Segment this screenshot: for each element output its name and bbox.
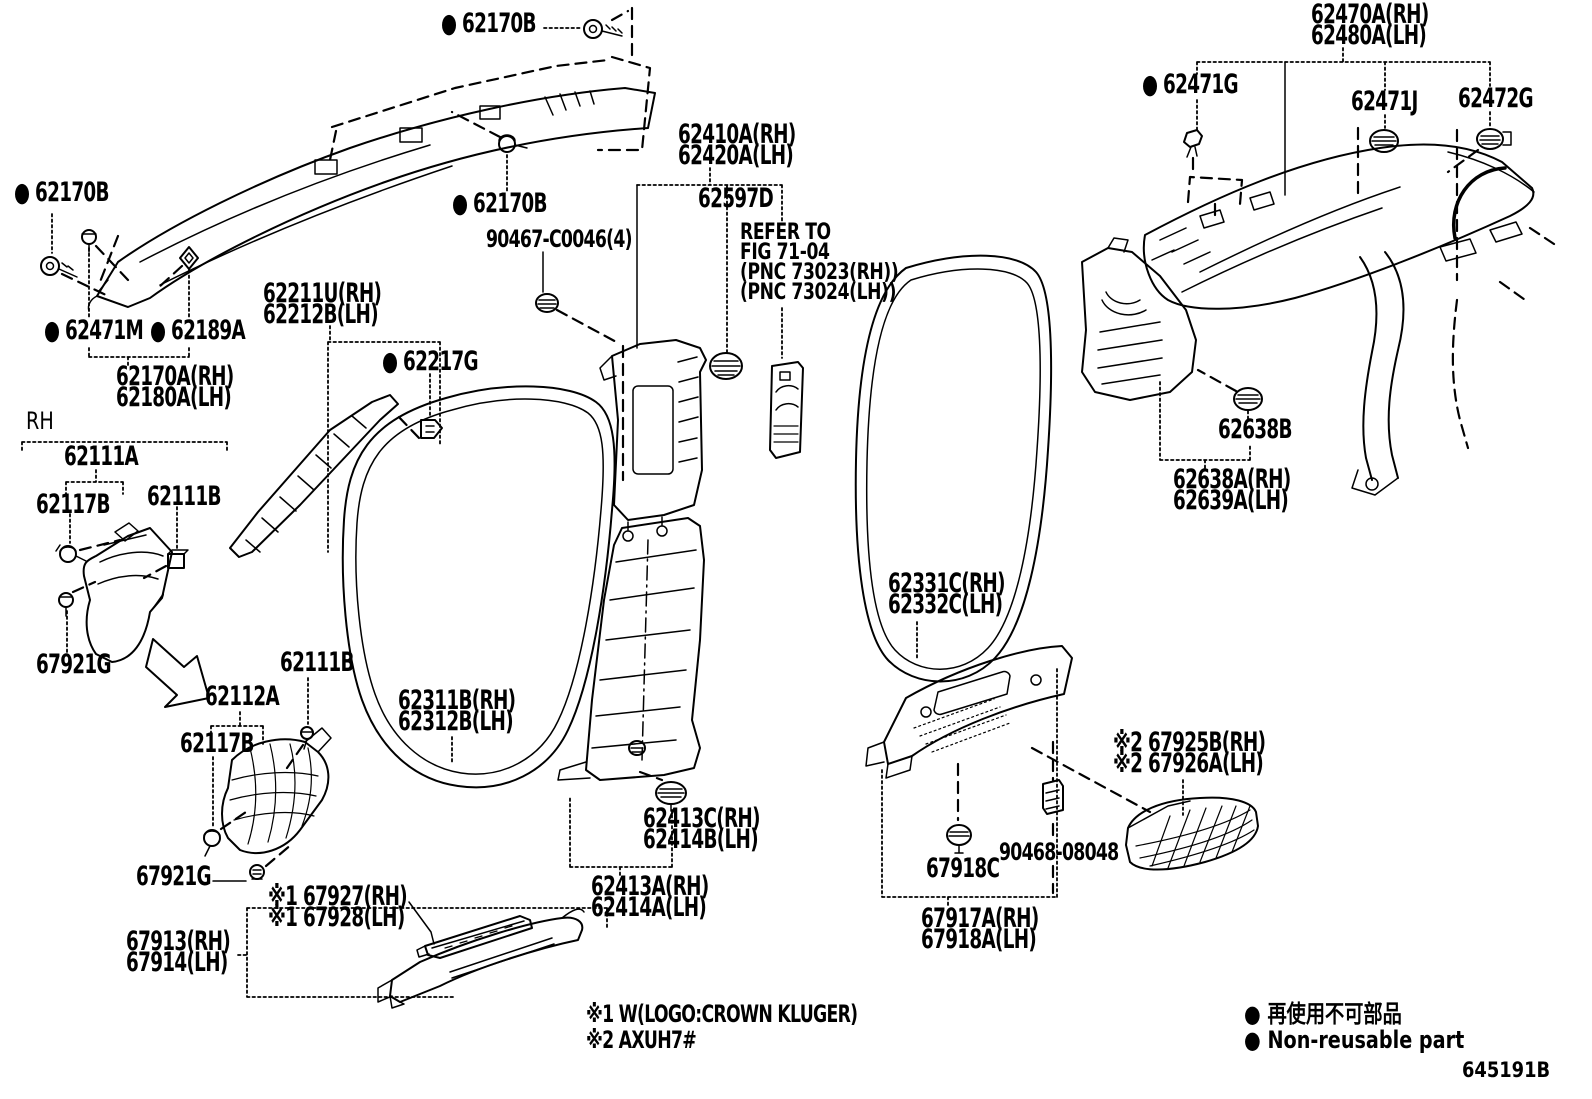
clip-rect-90468-icon: [1043, 780, 1063, 814]
b-pillar-upper-garnish-drawing: [600, 340, 706, 541]
part-label-62112a: 62112A: [205, 686, 279, 707]
part-label-62170a: 62170A(RH) 62180A(LH): [116, 366, 234, 408]
part-label-62117b-1: 62117B: [36, 494, 110, 515]
roof-side-rail-garnish-drawing: [62, 57, 655, 311]
section-marker-rh: RH: [26, 410, 54, 432]
clip-screw-62170b-top-icon: [584, 20, 622, 38]
part-label-62471g: ● 62471G: [1142, 74, 1238, 95]
front-scuff-plate-drawing: [378, 909, 584, 1008]
clip-grommet-62472g-icon: [1477, 129, 1511, 149]
part-label-62111a: 62111A: [64, 446, 138, 467]
cowl-side-trim-drawing: [84, 523, 172, 662]
part-label-62331c: 62331C(RH) 62332C(LH): [888, 573, 1005, 615]
part-label-62638a: 62638A(RH) 62639A(LH): [1173, 469, 1291, 511]
clip-pin-62471g-icon: [1184, 130, 1202, 157]
parts-diagram-page: ● 62170B ● 62170B ● 62170B ● 62471M ● 62…: [0, 0, 1592, 1099]
part-label-62111b-1: 62111B: [147, 486, 221, 507]
part-label-62638b: 62638B: [1218, 419, 1292, 440]
part-label-67925b: ※2 67925B(RH) ※2 67926A(LH): [1113, 732, 1265, 774]
part-label-67921g-1: 67921G: [36, 654, 111, 675]
clip-grommet-62638b-icon: [1234, 388, 1262, 410]
part-label-67913: 67913(RH) 67914(LH): [126, 931, 230, 973]
c-pillar-garnish-drawing: [1082, 238, 1196, 400]
b-pillar-lower-garnish-drawing: [558, 518, 704, 780]
part-label-62471m: ● 62471M: [44, 320, 143, 341]
step-pad-drawing: [1126, 798, 1258, 870]
clip-bracket-62217g-icon: [421, 420, 442, 438]
part-label-62211u: 62211U(RH) 62212B(LH): [263, 283, 381, 325]
part-label-62170b-left: ● 62170B: [14, 182, 109, 203]
part-label-90468: 90468-08048: [999, 842, 1118, 863]
scuff-strip-drawing: [417, 916, 532, 958]
clip-grommet-62597d-icon: [710, 353, 742, 379]
part-label-62111b-2: 62111B: [280, 652, 354, 673]
rear-scuff-plate-drawing: [866, 646, 1072, 778]
part-label-62170b-mid: ● 62170B: [452, 193, 547, 214]
part-label-90467: 90467-C0046(4): [486, 229, 632, 250]
part-label-62189a: ● 62189A: [150, 320, 245, 341]
clip-grommet-62471j-icon: [1370, 130, 1398, 152]
seatbelt-anchor-cover-drawing: [770, 362, 803, 458]
part-label-67921g-2: 67921G: [136, 866, 211, 887]
clip-grommet-67918c-icon: [947, 825, 971, 853]
clip-pin-67921g1-icon: [59, 593, 73, 616]
direction-arrow-icon: [146, 639, 209, 707]
part-label-67918c: 67918C: [926, 858, 999, 879]
clip-screw-62170b-left-icon: [41, 257, 77, 277]
legend-non-reusable-jp: ● 再使用不可部品: [1244, 1002, 1402, 1027]
clip-67921g2-icon: [250, 865, 264, 879]
clip-grommet-90467-icon: [536, 294, 558, 312]
part-label-62311b: 62311B(RH) 62312B(LH): [398, 690, 515, 732]
legend-non-reusable-en: ● Non-reusable part: [1244, 1028, 1464, 1053]
footnote-2: ※2 AXUH7#: [586, 1030, 696, 1051]
part-label-62217g: ● 62217G: [382, 351, 478, 372]
part-label-62410a: 62410A(RH) 62420A(LH): [678, 124, 796, 166]
diagram-artwork: [0, 0, 1592, 1099]
footnote-1: ※1 W(LOGO:CROWN KLUGER): [586, 1004, 857, 1025]
part-label-67927: ※1 67927(RH) ※1 67928(LH): [268, 886, 407, 928]
part-label-62471j: 62471J: [1351, 91, 1418, 112]
figure-code: 645191B: [1462, 1058, 1550, 1082]
a-pillar-upper-garnish-drawing: [230, 395, 398, 557]
part-label-62170b-top: ● 62170B: [441, 13, 536, 34]
clip-pin-62117b2-icon: [204, 830, 220, 856]
part-label-67917a: 67917A(RH) 67918A(LH): [921, 908, 1039, 950]
part-label-62117b-2: 62117B: [180, 733, 254, 754]
refer-to-note: REFER TO FIG 71-04 (PNC 73023(RH)) (PNC …: [740, 223, 898, 303]
part-label-62413c: 62413C(RH) 62414B(LH): [643, 808, 760, 850]
rear-quarter-trim-drawing: [1144, 128, 1554, 495]
clip-grommet-62413c-icon: [656, 782, 686, 804]
part-label-62472g: 62472G: [1458, 88, 1533, 109]
part-label-62470a: 62470A(RH) 62480A(LH): [1311, 4, 1429, 46]
part-label-62413a: 62413A(RH) 62414A(LH): [591, 876, 709, 918]
part-label-62597d: 62597D: [698, 188, 773, 209]
clip-pin-62117b1-icon: [56, 545, 86, 562]
